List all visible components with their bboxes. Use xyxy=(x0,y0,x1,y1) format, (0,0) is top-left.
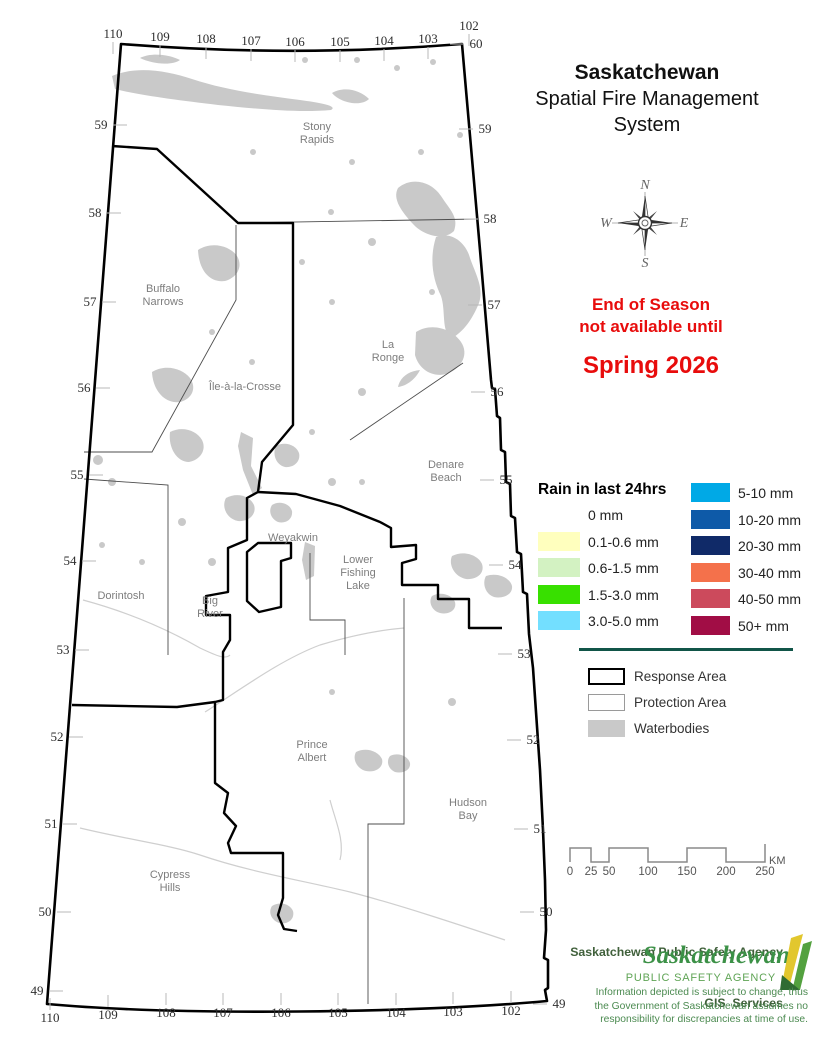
page: StonyRapidsBuffaloNarrowsÎle-à-la-Crosse… xyxy=(0,0,816,1056)
graticule-label-right: 57 xyxy=(488,297,502,312)
rain-legend-item: 0.1-0.6 mm xyxy=(538,532,659,551)
graticule-label-top: 108 xyxy=(196,31,216,46)
rain-swatch-label: 1.5-3.0 mm xyxy=(588,587,659,603)
rain-swatch xyxy=(691,510,730,529)
rain-swatch xyxy=(538,558,580,577)
season-notice-line3: Spring 2026 xyxy=(520,352,782,380)
graticule-label-right: 52 xyxy=(527,732,540,747)
graticule-label-bottom: 107 xyxy=(213,1005,233,1020)
rain-legend-item: 5-10 mm xyxy=(691,483,793,502)
graticule-label-top: 110 xyxy=(103,26,122,41)
rain-swatch-label: 0.6-1.5 mm xyxy=(588,560,659,576)
rain-swatch-label: 30-40 mm xyxy=(738,565,801,581)
scale-bar-number: 0 xyxy=(560,866,580,878)
rain-swatch-label: 20-30 mm xyxy=(738,538,801,554)
area-legend-item: Waterbodies xyxy=(588,720,709,737)
graticule-label-bottom: 105 xyxy=(328,1005,348,1020)
map-title-line2: Spatial Fire Management xyxy=(497,86,797,112)
place-label: BigRiver xyxy=(197,595,223,620)
place-label: Île-à-la-Crosse xyxy=(208,380,281,393)
graticule-label-right: 55 xyxy=(500,472,513,487)
graticule-label-left: 51 xyxy=(45,816,58,831)
season-notice: End of Season not available until Spring… xyxy=(520,294,782,380)
rain-legend-item: 40-50 mm xyxy=(691,589,801,608)
place-label: CypressHills xyxy=(150,869,191,894)
graticule-label-right: 59 xyxy=(479,121,492,136)
place-label: LaRonge xyxy=(372,339,404,364)
season-notice-line1: End of Season xyxy=(520,294,782,316)
scale-bar-number: 150 xyxy=(677,866,697,878)
compass-e-label: E xyxy=(679,216,689,231)
graticule-label-right: 53 xyxy=(518,646,531,661)
graticule-label-left: 56 xyxy=(78,380,92,395)
graticule-label-top: 105 xyxy=(330,34,350,49)
scale-bar-number: 50 xyxy=(599,866,619,878)
compass-s-label: S xyxy=(642,256,649,270)
legend-divider xyxy=(579,648,793,651)
area-legend-label: Protection Area xyxy=(634,695,726,710)
waterbody-swatch xyxy=(588,720,625,737)
graticule-label-bottom: 109 xyxy=(98,1007,118,1022)
compass-n-label: N xyxy=(639,178,650,193)
graticule-label-top: 104 xyxy=(374,33,394,48)
scale-bar: KM 02550100150200250 xyxy=(560,838,816,886)
graticule-label-left: 53 xyxy=(57,642,70,657)
graticule-label-left: 55 xyxy=(71,467,84,482)
rain-legend-title: Rain in last 24hrs xyxy=(538,481,666,499)
graticule-label-right: 58 xyxy=(484,211,497,226)
rivers xyxy=(80,600,505,940)
place-label: BuffaloNarrows xyxy=(143,283,184,308)
disclaimer-line: the Government of Saskatchewan assumes n… xyxy=(555,1000,808,1014)
graticule-label-right: 56 xyxy=(491,384,505,399)
rain-swatch xyxy=(691,483,730,502)
agency-logo-wordmark: Saskatchewan xyxy=(600,942,790,970)
response-swatch xyxy=(588,668,625,685)
disclaimer-line: Information depicted is subject to chang… xyxy=(555,986,808,1000)
rain-swatch-label: 50+ mm xyxy=(738,618,789,634)
rain-swatch xyxy=(538,505,580,524)
rain-swatch xyxy=(691,616,730,635)
scale-bar-graphic: KM xyxy=(560,838,816,868)
graticule-label-bottom: 103 xyxy=(443,1004,463,1019)
rain-legend-item: 0 mm xyxy=(538,505,623,524)
graticule-label-bottom: 104 xyxy=(386,1005,406,1020)
graticule-label-bottom: 108 xyxy=(156,1005,176,1020)
rain-swatch xyxy=(691,563,730,582)
rain-legend-item: 20-30 mm xyxy=(691,536,801,555)
protection-swatch xyxy=(588,694,625,711)
waterbodies xyxy=(93,55,512,924)
disclaimer-line: responsibility for discrepancies at time… xyxy=(555,1013,808,1027)
rain-swatch xyxy=(691,589,730,608)
area-legend-label: Waterbodies xyxy=(634,721,709,736)
rain-swatch xyxy=(691,536,730,555)
graticule-label-top: 103 xyxy=(418,31,438,46)
area-legend-label: Response Area xyxy=(634,669,726,684)
rain-swatch-label: 10-20 mm xyxy=(738,512,801,528)
graticule-label-top: 109 xyxy=(150,29,170,44)
rain-swatch xyxy=(538,532,580,551)
graticule-label-bottom: 110 xyxy=(40,1010,59,1025)
graticule-label-bottom: 102 xyxy=(501,1003,521,1018)
compass-w-label: W xyxy=(600,216,613,231)
place-label: LowerFishingLake xyxy=(340,554,375,592)
agency-logo-subtitle: PUBLIC SAFETY AGENCY xyxy=(600,972,776,984)
wheat-sheaf-icon xyxy=(770,932,816,994)
rain-legend-item: 3.0-5.0 mm xyxy=(538,611,659,630)
disclaimer: Information depicted is subject to chang… xyxy=(555,986,808,1027)
map-title-line3: System xyxy=(497,112,797,138)
graticule-label-left: 54 xyxy=(64,553,78,568)
graticule-label-left: 59 xyxy=(95,117,108,132)
season-notice-line2: not available until xyxy=(520,316,782,338)
graticule-label-left: 52 xyxy=(51,729,64,744)
place-label: DenareBeach xyxy=(428,459,464,484)
graticule-label-left: 58 xyxy=(89,205,102,220)
scale-bar-number: 200 xyxy=(716,866,736,878)
scale-bar-number: 100 xyxy=(638,866,658,878)
graticule-label-bottom: 106 xyxy=(271,1005,291,1020)
place-label: StonyRapids xyxy=(300,121,335,146)
rain-legend-item: 0.6-1.5 mm xyxy=(538,558,659,577)
graticule-label-top: 107 xyxy=(241,33,261,48)
map-title: Saskatchewan Spatial Fire Management Sys… xyxy=(497,60,797,138)
area-legend-item: Protection Area xyxy=(588,694,726,711)
graticule-label-right: 50 xyxy=(540,904,553,919)
province-outline xyxy=(47,44,548,1012)
rain-swatch xyxy=(538,585,580,604)
graticule-label-left: 49 xyxy=(31,983,44,998)
scale-bar-number: 25 xyxy=(581,866,601,878)
rain-swatch-label: 0.1-0.6 mm xyxy=(588,534,659,550)
place-label: HudsonBay xyxy=(449,797,487,822)
place-label: Weyakwin xyxy=(268,532,318,544)
rain-legend-item: 1.5-3.0 mm xyxy=(538,585,659,604)
rain-swatch-label: 3.0-5.0 mm xyxy=(588,613,659,629)
rain-swatch-label: 40-50 mm xyxy=(738,591,801,607)
rain-swatch xyxy=(538,611,580,630)
rain-legend-item: 10-20 mm xyxy=(691,510,801,529)
rain-swatch-label: 5-10 mm xyxy=(738,485,793,501)
map-title-line1: Saskatchewan xyxy=(497,60,797,86)
rain-legend-item: 30-40 mm xyxy=(691,563,801,582)
graticule-label-right: 54 xyxy=(509,557,523,572)
area-legend-item: Response Area xyxy=(588,668,726,685)
graticule-label-right: 60 xyxy=(470,36,483,51)
graticule-label-right: 51 xyxy=(534,821,547,836)
graticule-label-top: 102 xyxy=(459,18,479,33)
rain-swatch-label: 0 mm xyxy=(588,507,623,523)
scale-bar-number: 250 xyxy=(755,866,775,878)
compass-rose-icon: N E S W xyxy=(598,176,692,270)
place-label: Dorintosh xyxy=(97,590,144,602)
graticule-label-left: 57 xyxy=(84,294,98,309)
rain-legend-item: 50+ mm xyxy=(691,616,789,635)
place-label: PrinceAlbert xyxy=(296,739,327,764)
graticule-label-left: 50 xyxy=(39,904,52,919)
graticule-label-top: 106 xyxy=(285,34,305,49)
